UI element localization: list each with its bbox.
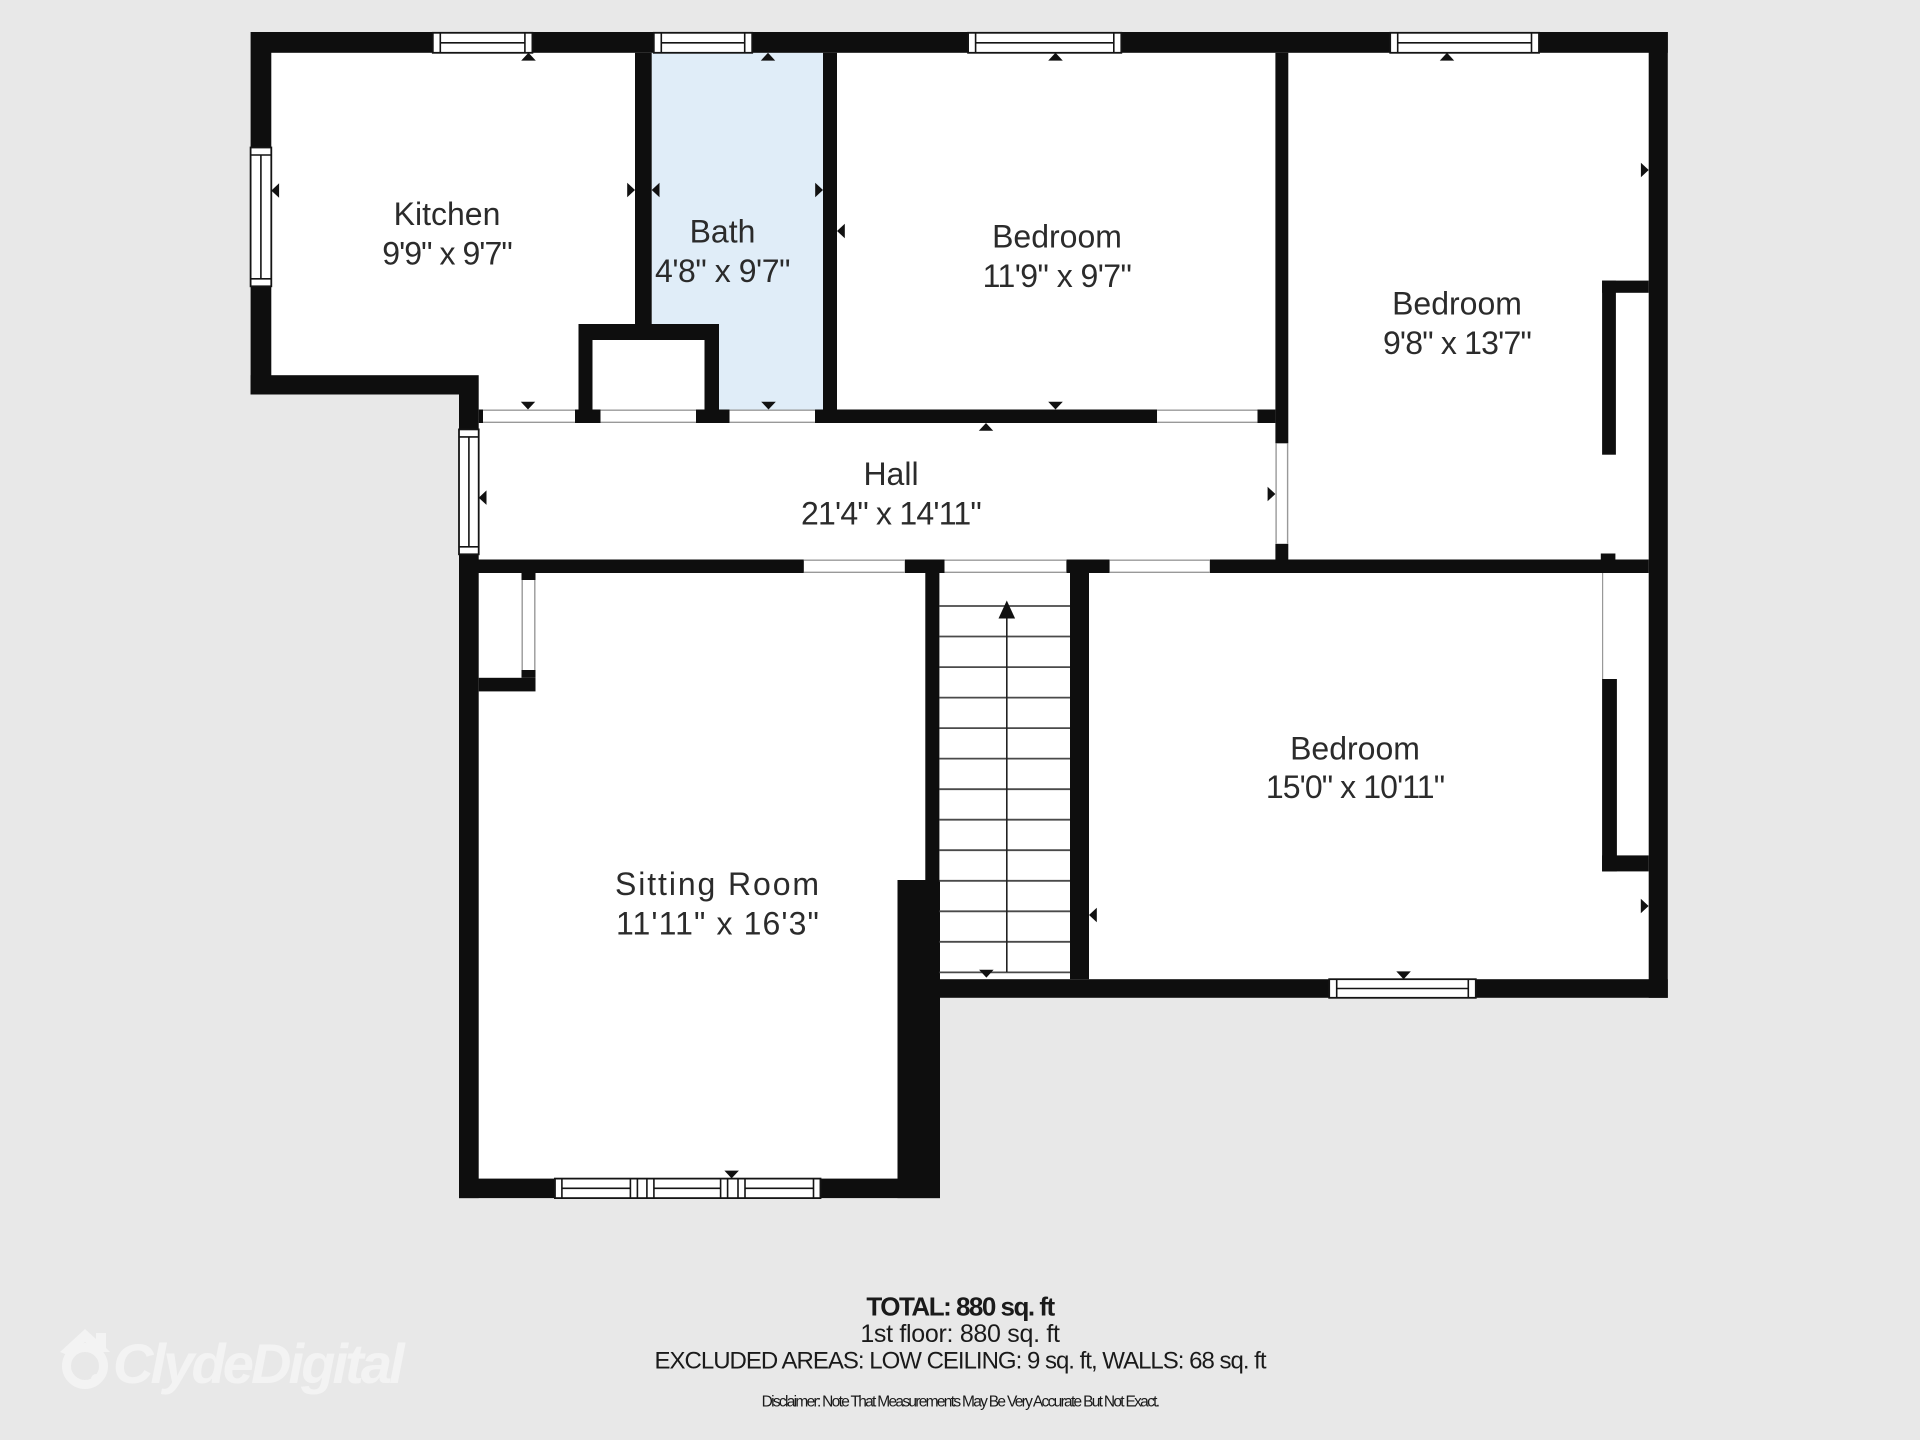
svg-text:9'9" x 9'7": 9'9" x 9'7": [382, 236, 511, 272]
svg-text:15'0" x 10'11": 15'0" x 10'11": [1266, 769, 1444, 805]
svg-text:ClydeDigital: ClydeDigital: [113, 1332, 406, 1395]
svg-text:11'9" x 9'7": 11'9" x 9'7": [983, 258, 1132, 294]
svg-text:11'11" x 16'3": 11'11" x 16'3": [616, 906, 820, 942]
svg-text:9'8" x 13'7": 9'8" x 13'7": [1383, 325, 1531, 361]
svg-text:Bedroom: Bedroom: [992, 218, 1122, 254]
svg-text:4'8" x 9'7": 4'8" x 9'7": [655, 253, 790, 289]
svg-text:1st floor: 880 sq. ft: 1st floor: 880 sq. ft: [860, 1320, 1060, 1348]
svg-text:Bedroom: Bedroom: [1392, 285, 1522, 321]
svg-text:Kitchen: Kitchen: [394, 196, 501, 232]
svg-text:Sitting Room: Sitting Room: [615, 866, 821, 902]
svg-text:Disclaimer: Note That Measurem: Disclaimer: Note That Measurements May B…: [762, 1394, 1159, 1411]
svg-text:Bath: Bath: [690, 214, 756, 250]
svg-text:21'4" x 14'11": 21'4" x 14'11": [801, 496, 981, 532]
svg-text:Bedroom: Bedroom: [1290, 730, 1420, 766]
svg-text:EXCLUDED AREAS: LOW CEILING: 9: EXCLUDED AREAS: LOW CEILING: 9 sq. ft, W…: [655, 1348, 1267, 1375]
svg-text:Hall: Hall: [863, 456, 918, 492]
svg-text:TOTAL: 880 sq. ft: TOTAL: 880 sq. ft: [866, 1292, 1055, 1322]
